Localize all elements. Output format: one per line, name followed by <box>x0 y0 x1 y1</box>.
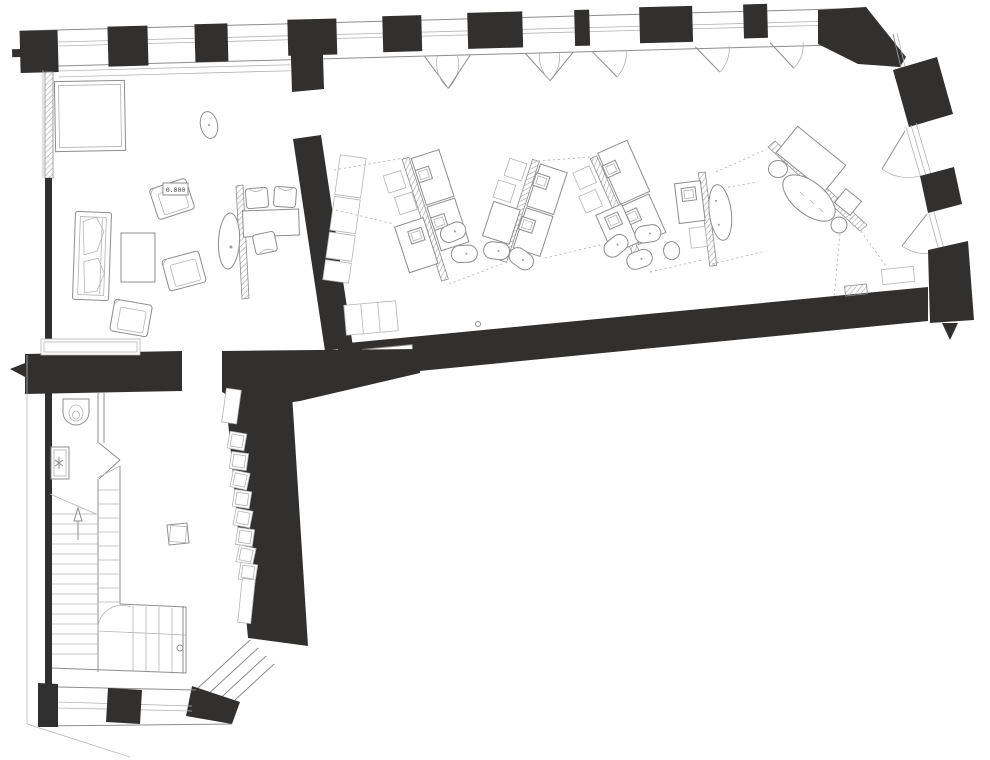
wall-pier <box>467 11 523 48</box>
window-glazing-line <box>934 212 944 249</box>
desk-dot <box>230 246 233 249</box>
wall-pier <box>20 30 59 73</box>
top-facade-wall <box>11 1 886 101</box>
door-swing <box>592 51 627 78</box>
stool <box>235 527 254 546</box>
french-door-swing <box>424 55 471 89</box>
stool <box>230 470 250 490</box>
wall-corner-block <box>928 241 974 323</box>
sofa <box>72 211 111 300</box>
reception <box>217 185 299 299</box>
stool <box>232 489 251 508</box>
window-glazing-line <box>58 25 820 46</box>
workstation-cluster-2 <box>474 151 568 275</box>
walking-line-end <box>177 645 183 651</box>
lounge: 0.000 <box>41 80 220 355</box>
workstation-cluster-1 <box>375 146 484 290</box>
floor-outlet-icon <box>476 322 481 327</box>
french-door-swing <box>525 52 574 81</box>
sideboard <box>41 339 140 355</box>
stair-treads-upper <box>52 514 97 654</box>
wall-pier <box>186 686 240 724</box>
desk-return <box>493 180 516 203</box>
office-chair <box>769 161 788 178</box>
wall-tick <box>942 323 958 340</box>
stool <box>233 508 253 528</box>
wall-tick <box>10 363 25 377</box>
square-table <box>54 80 125 151</box>
office-chair <box>451 245 478 263</box>
interior-wall-stub <box>290 25 324 92</box>
plant-center-dot <box>208 124 210 126</box>
stair-break-line <box>97 466 120 478</box>
office-chair <box>483 241 511 261</box>
wall-mass <box>45 178 52 692</box>
office-chair <box>624 247 654 272</box>
monitor-icon <box>681 187 696 202</box>
window-sill-line <box>59 65 291 71</box>
coffee-table <box>121 233 155 282</box>
stool <box>236 545 256 565</box>
wall-pier <box>743 4 768 39</box>
wall-pier <box>920 167 962 213</box>
floor-plan: 0.000 <box>0 0 990 760</box>
stair-treads-return <box>98 490 120 602</box>
wall-pier <box>639 6 693 43</box>
stool <box>227 431 247 451</box>
wall-cabinet <box>881 266 914 284</box>
desk-return <box>579 189 603 213</box>
armchair <box>162 251 207 292</box>
threshold-hatch <box>845 284 868 296</box>
workstation-cluster-corner <box>768 126 867 233</box>
workstation-cluster-3 <box>565 140 677 280</box>
small-stool <box>167 523 189 545</box>
winder-curve <box>98 605 131 631</box>
door-swing <box>902 214 938 254</box>
window-glazing-line <box>929 214 939 251</box>
low-cabinet <box>344 301 398 335</box>
workstation-cluster-4 <box>655 169 738 271</box>
exterior-ground-line <box>27 724 130 757</box>
hatched-existing-wall <box>45 72 53 178</box>
window-glazing-line <box>58 21 820 42</box>
wall-pier <box>382 15 422 52</box>
stair-break-line <box>50 494 96 514</box>
wall-pier <box>38 683 58 727</box>
wall-pier <box>106 688 142 724</box>
wall-pier <box>107 26 148 67</box>
armchair <box>110 299 153 337</box>
stool <box>229 451 248 470</box>
desk-return <box>689 226 707 248</box>
corner-chamfer-pier <box>818 7 906 67</box>
staircase <box>50 466 186 673</box>
desk-return <box>383 170 406 193</box>
wc-area <box>51 392 120 479</box>
wall-pier <box>12 49 21 57</box>
door-leaf <box>99 443 120 460</box>
wall-mass <box>338 287 928 379</box>
stair-direction-arrow <box>74 508 82 521</box>
wall-pier <box>194 23 228 62</box>
reception-chair <box>273 186 296 207</box>
wall-outer-line <box>38 724 232 726</box>
wall-pier <box>893 57 953 127</box>
floor-plan-canvas: 0.000 <box>0 0 990 760</box>
reception-chair <box>252 231 278 255</box>
desk-return <box>504 158 527 181</box>
wall-pier <box>574 10 590 46</box>
oval-desk <box>217 212 241 269</box>
door-swing <box>695 46 730 73</box>
elevation-label: 0.000 <box>166 186 186 194</box>
office-chair <box>663 241 681 261</box>
desk-return <box>573 166 597 190</box>
office-chair <box>831 217 847 233</box>
door-leaf <box>99 460 120 479</box>
office-south-wall <box>338 287 928 379</box>
reception-chair <box>245 187 269 209</box>
window-sill-line <box>59 71 291 77</box>
